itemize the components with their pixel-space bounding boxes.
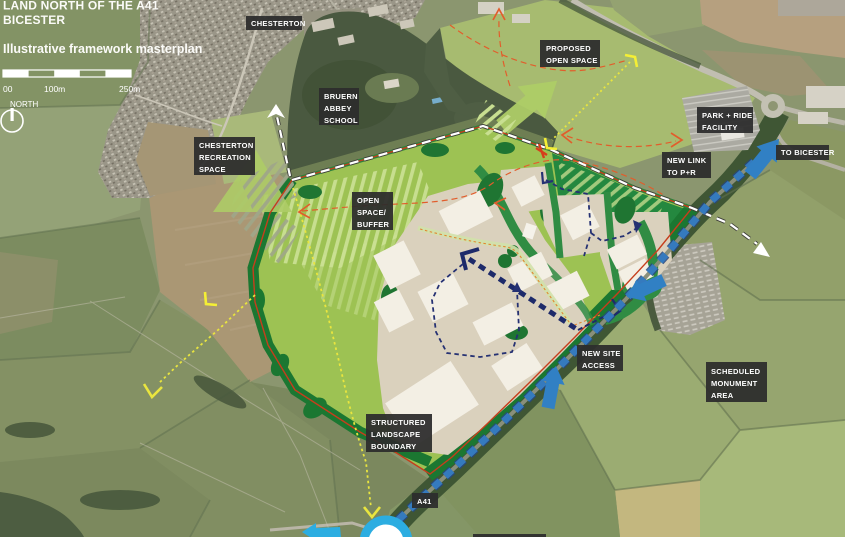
svg-text:NEW LINK: NEW LINK xyxy=(667,156,707,165)
svg-text:PARK + RIDE: PARK + RIDE xyxy=(702,111,752,120)
svg-text:ACCESS: ACCESS xyxy=(582,361,615,370)
svg-text:100m: 100m xyxy=(44,84,65,94)
svg-text:AREA: AREA xyxy=(711,391,734,400)
svg-text:Illustrative framework masterp: Illustrative framework masterplan xyxy=(3,42,202,56)
svg-text:TO P+R: TO P+R xyxy=(667,168,696,177)
svg-text:BICESTER: BICESTER xyxy=(3,13,65,27)
svg-text:SCHOOL: SCHOOL xyxy=(324,116,358,125)
svg-text:SCHEDULED: SCHEDULED xyxy=(711,367,761,376)
svg-text:PROPOSED: PROPOSED xyxy=(546,44,591,53)
svg-text:00: 00 xyxy=(3,84,13,94)
svg-text:BUFFER: BUFFER xyxy=(357,220,389,229)
svg-text:RECREATION: RECREATION xyxy=(199,153,251,162)
svg-text:FACILITY: FACILITY xyxy=(702,123,738,132)
svg-text:NEW SITE: NEW SITE xyxy=(582,349,621,358)
svg-text:250m: 250m xyxy=(119,84,140,94)
svg-text:LAND NORTH OF THE A41: LAND NORTH OF THE A41 xyxy=(3,0,159,13)
svg-text:ABBEY: ABBEY xyxy=(324,104,352,113)
svg-text:LANDSCAPE: LANDSCAPE xyxy=(371,430,420,439)
svg-text:SPACE: SPACE xyxy=(199,165,226,174)
svg-text:CHESTERTON: CHESTERTON xyxy=(251,19,306,28)
svg-text:CHESTERTON: CHESTERTON xyxy=(199,141,254,150)
svg-text:MONUMENT: MONUMENT xyxy=(711,379,758,388)
svg-text:OPEN SPACE: OPEN SPACE xyxy=(546,56,598,65)
svg-text:BRUERN: BRUERN xyxy=(324,92,358,101)
svg-text:OPEN: OPEN xyxy=(357,196,379,205)
svg-text:TO BICESTER: TO BICESTER xyxy=(781,148,835,157)
svg-text:BOUNDARY: BOUNDARY xyxy=(371,442,416,451)
svg-text:NORTH: NORTH xyxy=(10,100,39,109)
svg-text:A41: A41 xyxy=(417,497,432,506)
svg-text:SPACE/: SPACE/ xyxy=(357,208,387,217)
svg-text:STRUCTURED: STRUCTURED xyxy=(371,418,426,427)
